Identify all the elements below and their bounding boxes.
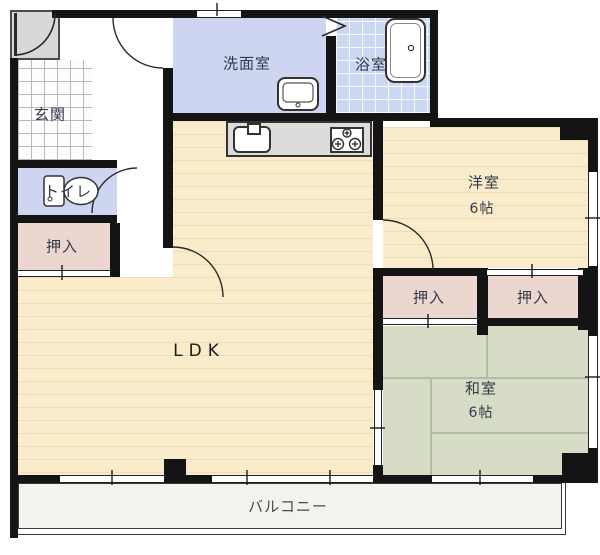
window: [60, 475, 164, 483]
door-opening: [163, 18, 173, 68]
label-western-size: 6帖: [470, 198, 495, 218]
label-toilet: トイレ: [44, 181, 92, 202]
wall: [18, 475, 60, 483]
tatami-line: [430, 377, 432, 475]
wall: [560, 118, 598, 140]
wall: [326, 36, 336, 113]
wall: [186, 475, 212, 483]
wall: [373, 475, 432, 483]
door-opening: [163, 248, 173, 277]
label-balcony: バルコニー: [248, 496, 328, 517]
wall: [373, 268, 478, 276]
wall: [163, 68, 173, 248]
door-opening: [326, 18, 336, 36]
sliding-door: [383, 318, 477, 325]
label-ldk: LDK: [173, 341, 225, 361]
label-japanese-room: 和室: [465, 378, 497, 399]
wall: [10, 160, 117, 168]
room-ldk: [18, 277, 373, 475]
window: [588, 336, 598, 448]
window: [212, 475, 373, 483]
sliding-door: [18, 270, 110, 277]
wall: [430, 10, 438, 121]
label-closet-left: 押入: [46, 236, 78, 257]
tatami-line: [430, 432, 588, 434]
floor-plan: 玄関 洗面室 浴室 トイレ 押入 押入 押入 洋室 6帖 和室 6帖 LDK バ…: [0, 0, 600, 555]
wall: [52, 10, 438, 18]
label-closet-middle: 押入: [413, 287, 445, 308]
window: [197, 10, 241, 18]
window: [432, 475, 533, 483]
wall: [10, 58, 18, 538]
label-washroom: 洗面室: [223, 53, 271, 74]
sliding-door: [487, 269, 583, 276]
wall: [164, 459, 186, 483]
label-western-room: 洋室: [468, 172, 500, 193]
washroom-door-arc: [113, 18, 163, 68]
wall: [487, 318, 590, 326]
wall: [10, 215, 117, 223]
label-bathroom: 浴室: [355, 54, 387, 75]
label-genkan: 玄関: [34, 104, 66, 125]
kitchen-stove: [330, 127, 364, 153]
sliding-door: [374, 390, 382, 465]
label-japanese-size: 6帖: [469, 402, 494, 422]
window: [588, 172, 598, 266]
wall: [110, 223, 120, 277]
wall: [533, 475, 578, 483]
kitchen-faucet: [247, 123, 261, 135]
label-closet-right: 押入: [517, 287, 549, 308]
wall: [373, 113, 383, 220]
wall: [373, 270, 383, 390]
wall: [163, 113, 438, 121]
